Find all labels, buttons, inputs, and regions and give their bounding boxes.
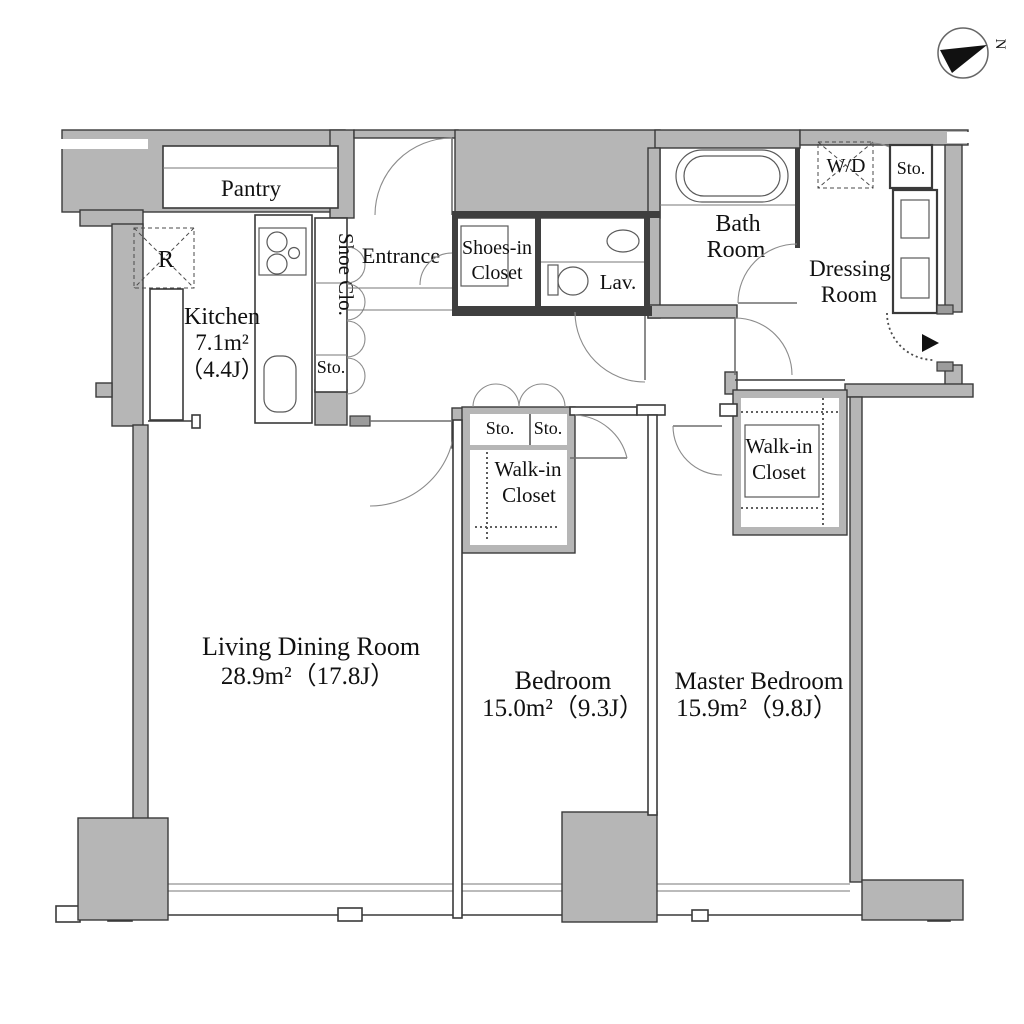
compass-north-label: N xyxy=(992,39,1008,50)
toilet-icon xyxy=(548,265,588,295)
master-bedroom-area: 15.9m²（9.8J） xyxy=(676,694,838,722)
window-living xyxy=(168,884,453,891)
room-bath: Bath Room xyxy=(660,148,800,303)
room-kitchen: R Kitchen 7.1m² （4.4J） xyxy=(134,215,312,428)
hall-storage-label: Sto. xyxy=(317,357,346,377)
dressing-door-swing xyxy=(735,318,792,375)
exit-door-swing xyxy=(887,313,934,360)
window-bedroom xyxy=(462,884,562,891)
room-dressing: Dressing Room xyxy=(735,190,953,380)
wic-master-label-1: Walk-in xyxy=(745,434,813,458)
pillar-left xyxy=(78,818,168,920)
entrance-arrow-icon xyxy=(922,334,939,352)
refrigerator-label: R xyxy=(158,247,174,273)
pillars xyxy=(78,812,963,922)
pantry-label: Pantry xyxy=(221,176,282,201)
bedroom-area: 15.0m²（9.3J） xyxy=(482,694,644,722)
master-door-swing xyxy=(673,426,722,475)
pillar-middle xyxy=(562,812,657,922)
room-bedroom: Bedroom 15.0m²（9.3J） xyxy=(482,666,644,722)
living-dining-area: 28.9m²（17.8J） xyxy=(221,662,395,690)
shoes-in-closet-label-2: Closet xyxy=(471,262,523,284)
dressing-room-label-2: Room xyxy=(821,282,877,307)
lavatory-label: Lav. xyxy=(600,270,637,294)
bathtub-icon xyxy=(676,150,788,202)
dressing-cabinets xyxy=(893,190,937,313)
room-living-dining: Living Dining Room 28.9m²（17.8J） xyxy=(202,632,420,690)
bedroom-name: Bedroom xyxy=(515,666,612,695)
kitchen-counter-right xyxy=(255,215,312,423)
master-closet-block: Walk-in Closet xyxy=(733,390,847,535)
window-master xyxy=(657,884,850,891)
dressing-room-label-1: Dressing xyxy=(809,256,891,281)
wic-bedroom-label-1: Walk-in xyxy=(494,457,562,481)
ldr-door xyxy=(350,416,455,506)
compass: N xyxy=(938,28,1008,78)
bath-room-label-1: Bath xyxy=(715,211,760,237)
floor-plan-page: Pantry R Kitchen 7.1m² （4.4J） xyxy=(0,0,1024,1024)
kitchen-area-jo: （4.4J） xyxy=(180,357,264,382)
kitchen-label: Kitchen xyxy=(184,304,260,330)
room-pantry: Pantry xyxy=(163,146,338,208)
bedroom-door-swing xyxy=(575,415,627,458)
lavatory-sink-icon xyxy=(607,230,639,252)
balcony-right-wall xyxy=(862,880,963,920)
service-exit xyxy=(887,305,953,371)
ldr-door-swing xyxy=(370,421,455,506)
storage-mid-left-label: Sto. xyxy=(486,418,515,438)
entrance-hall: Entrance xyxy=(348,138,452,310)
washer-dryer-label: W/D xyxy=(827,155,866,177)
storage-mid-right-label: Sto. xyxy=(534,418,563,438)
living-dining-name: Living Dining Room xyxy=(202,632,420,661)
kitchen-area-m2: 7.1m² xyxy=(195,330,249,355)
room-lavatory: Lav. xyxy=(541,215,650,382)
wall-ldr-bedroom xyxy=(453,420,462,918)
entrance-label: Entrance xyxy=(362,243,440,268)
lavatory-door-swing xyxy=(575,312,645,382)
room-master-bedroom: Master Bedroom 15.9m²（9.8J） xyxy=(675,668,844,722)
bedroom-storage-closet-block: Sto. Sto. Walk-in Closet xyxy=(462,384,575,553)
storage-top-label: Sto. xyxy=(897,158,926,178)
front-door-swing xyxy=(375,138,452,215)
room-storage-top: Sto. xyxy=(890,145,932,188)
kitchen-counter-left xyxy=(150,289,183,420)
wic-bedroom-label-2: Closet xyxy=(502,483,556,507)
balcony xyxy=(56,884,963,922)
shoe-closet-strip: Shoe Clo. Sto. xyxy=(315,218,365,394)
wall-bedroom-master xyxy=(648,415,657,815)
compass-needle-icon xyxy=(940,45,987,73)
floor-plan-drawing: Pantry R Kitchen 7.1m² （4.4J） xyxy=(0,0,1024,1024)
master-bedroom-name: Master Bedroom xyxy=(675,668,844,695)
shoes-in-closet-label-1: Shoes-in xyxy=(462,237,532,259)
wic-master-label-2: Closet xyxy=(752,460,806,484)
shoe-closet-label: Shoe Clo. xyxy=(334,233,358,316)
